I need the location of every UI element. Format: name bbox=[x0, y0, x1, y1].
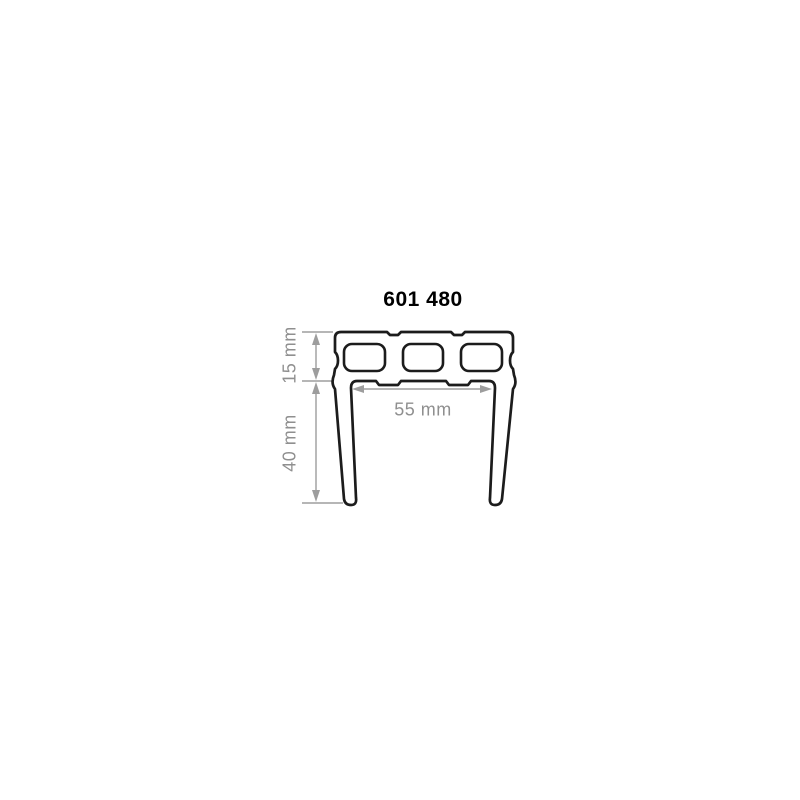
arrowhead-down bbox=[312, 368, 320, 380]
arrowhead-up bbox=[312, 382, 320, 394]
drawing-canvas: 601 480 15 mm bbox=[0, 0, 800, 800]
profile-chamber-2 bbox=[403, 344, 443, 371]
dimension-label-40mm: 40 mm bbox=[280, 414, 301, 472]
dimension-55mm bbox=[352, 385, 492, 393]
arrowhead-left bbox=[352, 385, 364, 393]
dimension-label-55mm: 55 mm bbox=[394, 400, 452, 421]
profile-chamber-1 bbox=[344, 344, 385, 371]
arrowhead-right bbox=[480, 385, 492, 393]
dimension-15mm bbox=[302, 332, 333, 381]
arrowhead-down bbox=[312, 490, 320, 502]
profile-chamber-3 bbox=[461, 344, 502, 371]
arrowhead-up bbox=[312, 333, 320, 345]
dimension-label-15mm: 15 mm bbox=[280, 326, 301, 384]
